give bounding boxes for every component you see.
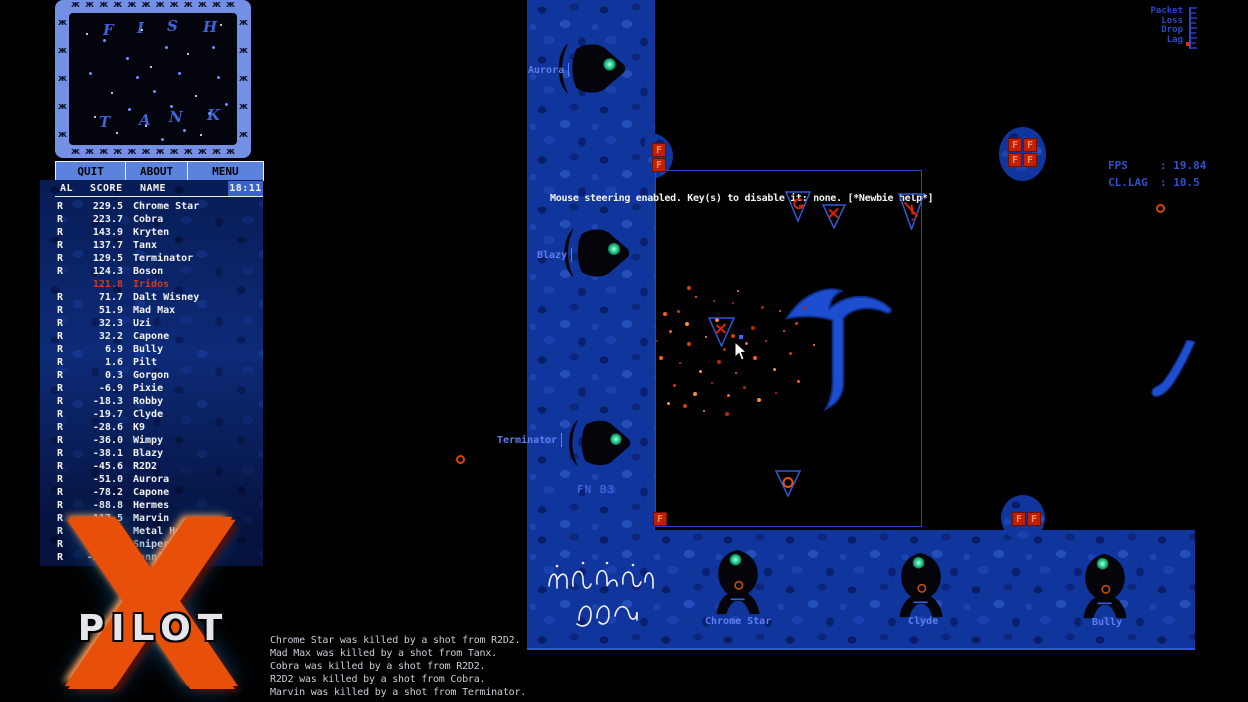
- explosion-debris: [757, 398, 761, 402]
- xpilot-screen: жжжжжжжжжжжж жжжжжжжжжжжж жжжжж жжжжж F …: [0, 0, 1248, 702]
- fuel-cell: F: [1008, 138, 1022, 152]
- player-name: Pixie: [133, 383, 163, 394]
- score-value: -19.7: [71, 409, 123, 420]
- radar-star: [178, 72, 181, 75]
- lag-value: : 10.5: [1160, 176, 1200, 189]
- net-meter-gauge: [1186, 5, 1202, 51]
- explosion-debris: [773, 368, 776, 371]
- score-value: 143.9: [71, 227, 123, 238]
- score-value: -18.3: [71, 396, 123, 407]
- score-value: -38.1: [71, 448, 123, 459]
- net-lag-marker: [1186, 42, 1190, 46]
- fuel-cell: F: [1023, 138, 1037, 152]
- score-flag: R: [57, 461, 71, 472]
- fish-clyde: [896, 552, 946, 618]
- radar-star: [200, 134, 202, 136]
- score-value: -45.6: [71, 461, 123, 472]
- score-flag: R: [57, 266, 71, 277]
- explosion-debris: [673, 384, 676, 387]
- fish-icon: ж: [57, 102, 68, 112]
- explosion-debris: [717, 360, 721, 364]
- score-row: R -38.1 Blazy: [40, 447, 263, 460]
- score-header: AL SCORE NAME 18:11: [40, 181, 263, 196]
- score-value: -6.9: [71, 383, 123, 394]
- player-name: R2D2: [133, 461, 157, 472]
- explosion-debris: [663, 312, 667, 316]
- explosion-debris: [659, 356, 663, 360]
- score-row: R -45.6 R2D2: [40, 460, 263, 473]
- radar-star: [126, 57, 129, 60]
- fish-icon: ж: [184, 147, 193, 158]
- fish-icon: ж: [184, 0, 193, 11]
- fuel-cell: F: [1027, 512, 1041, 526]
- explosion-debris: [743, 386, 746, 389]
- fish-icon: ж: [57, 18, 68, 28]
- score-row: R 1.6 Pilt: [40, 356, 263, 369]
- radar-border-fish-bottom: жжжжжжжжжжжж: [71, 147, 235, 158]
- explosion-debris: [705, 336, 707, 338]
- explosion-debris: [693, 392, 697, 396]
- fish-icon: ж: [57, 74, 68, 84]
- explosion-debris: [685, 322, 689, 326]
- score-row: R -28.6 K9: [40, 421, 263, 434]
- kill-message: Cobra was killed by a shot from R2D2.: [270, 661, 526, 674]
- radar-letter: F: [103, 21, 114, 39]
- score-row: R 137.7 Tanx: [40, 239, 263, 252]
- score-value: 32.2: [71, 331, 123, 342]
- player-name: Dalt Wisney: [133, 292, 199, 303]
- radar-star: [220, 24, 222, 26]
- explosion-debris: [683, 404, 687, 408]
- lag-label: CL.LAG: [1108, 174, 1160, 191]
- radar-border-fish-left: жжжжж: [57, 18, 68, 140]
- quit-button[interactable]: QUIT: [56, 162, 125, 180]
- radar-star: [225, 103, 228, 106]
- player-name: Capone: [133, 331, 169, 342]
- net-meter-label: Lag: [1113, 36, 1183, 46]
- explosion-debris: [732, 302, 734, 304]
- fish-icon: ж: [99, 147, 108, 158]
- score-flag: R: [57, 396, 71, 407]
- logo-title: PILOT: [40, 608, 263, 649]
- player-name: Uzi: [133, 318, 151, 329]
- explosion-debris: [677, 310, 680, 313]
- player-name: Bully: [133, 344, 163, 355]
- radar-star: [86, 33, 88, 35]
- kill-message: Mad Max was killed by a shot from Tanx.: [270, 648, 526, 661]
- player-name: Cobra: [133, 214, 163, 225]
- fish-icon: ж: [238, 102, 249, 112]
- fps-label: FPS: [1108, 157, 1160, 174]
- score-flag: R: [57, 331, 71, 342]
- score-row: 121.8 Iridos: [40, 278, 263, 291]
- score-value: -36.0: [71, 435, 123, 446]
- fish-icon: ж: [71, 0, 80, 11]
- col-header-al: AL: [60, 183, 73, 194]
- kill-message: Marvin was killed by a shot from Termina…: [270, 687, 526, 700]
- player-name: Terminator: [133, 253, 193, 264]
- fish-icon: ж: [141, 147, 150, 158]
- fish-icon: ж: [198, 147, 207, 158]
- score-row: R 124.3 Boson: [40, 265, 263, 278]
- explosion-debris: [783, 330, 785, 332]
- fps-panel: FPS: 19.84 CL.LAG: 10.5: [1108, 157, 1206, 191]
- explosion-debris: [655, 340, 657, 342]
- explosion-debris: [803, 306, 806, 309]
- score-row: R 143.9 Kryten: [40, 226, 263, 239]
- player-name: Tanx: [133, 240, 157, 251]
- label-tagbar: [561, 433, 562, 447]
- score-flag: R: [57, 227, 71, 238]
- clock: 18:11: [228, 181, 263, 196]
- radar-star: [217, 76, 220, 79]
- fish-icon: ж: [156, 0, 165, 11]
- score-row: R 51.9 Mad Max: [40, 304, 263, 317]
- radar-star: [165, 46, 168, 49]
- map-label-chrome-star: Chrome Star: [705, 616, 771, 627]
- player-name: Gorgon: [133, 370, 169, 381]
- radar-border-fish-top: жжжжжжжжжжжж: [71, 0, 235, 11]
- player-name: Robby: [133, 396, 163, 407]
- player-name: Boson: [133, 266, 163, 277]
- radar-star: [116, 132, 118, 134]
- net-meter-labels: PacketLossDropLag: [1113, 7, 1183, 45]
- label-tagbar: [571, 248, 572, 262]
- fuel-cell: F: [1008, 153, 1022, 167]
- explosion-debris: [713, 300, 715, 302]
- radar-star: [128, 108, 131, 111]
- fuel-cell: F: [1012, 512, 1026, 526]
- fish-icon: ж: [226, 0, 235, 11]
- score-flag: R: [57, 201, 71, 212]
- fish-terminator: [563, 418, 631, 468]
- explosion-debris: [745, 342, 748, 345]
- score-flag: R: [57, 214, 71, 225]
- radar-star: [212, 46, 215, 49]
- score-row: R 32.3 Uzi: [40, 317, 263, 330]
- col-header-name: NAME: [140, 183, 166, 194]
- about-button[interactable]: ABOUT: [125, 162, 186, 180]
- header-underline: [55, 196, 263, 197]
- score-flag: R: [57, 240, 71, 251]
- fuel-cell: F: [652, 143, 666, 157]
- menu-button[interactable]: MENU: [187, 162, 263, 180]
- player-name: Chrome Star: [133, 201, 199, 212]
- kill-message: Chrome Star was killed by a shot from R2…: [270, 635, 526, 648]
- score-value: 124.3: [71, 266, 123, 277]
- score-row: R -18.3 Robby: [40, 395, 263, 408]
- radar-letter: I: [137, 19, 144, 37]
- explosion-debris: [779, 310, 781, 312]
- radar-star: [136, 76, 139, 79]
- sector-label: FN B3: [577, 483, 615, 496]
- score-row: R 0.3 Gorgon: [40, 369, 263, 382]
- score-row: R 71.7 Dalt Wisney: [40, 291, 263, 304]
- fish-icon: ж: [113, 0, 122, 11]
- fish-icon: ж: [57, 130, 68, 140]
- player-name: Wimpy: [133, 435, 163, 446]
- fish-icon: ж: [238, 18, 249, 28]
- score-value: -28.6: [71, 422, 123, 433]
- fish-icon: ж: [238, 46, 249, 56]
- explosion-debris: [789, 352, 792, 355]
- tengwar-wall-glyph: [783, 283, 892, 412]
- radar-letter: S: [167, 17, 178, 35]
- radar-star: [103, 39, 106, 42]
- radar-border-fish-right: жжжжж: [238, 18, 249, 140]
- col-header-score: SCORE: [90, 183, 123, 194]
- fish-icon: ж: [170, 0, 179, 11]
- map-label-aurora: Aurora: [528, 63, 569, 77]
- score-value: 71.7: [71, 292, 123, 303]
- explosion-debris: [797, 380, 800, 383]
- explosion-debris: [751, 326, 755, 330]
- score-row: R 229.5 Chrome Star: [40, 200, 263, 213]
- radar-star: [187, 53, 189, 55]
- fish-icon: ж: [212, 147, 221, 158]
- explosion-debris: [695, 296, 697, 298]
- player-name: Blazy: [133, 448, 163, 459]
- fish-icon: ж: [71, 147, 80, 158]
- explosion-debris: [737, 290, 739, 292]
- enemy-ship: [775, 470, 801, 497]
- status-message: Mouse steering enabled. Key(s) to disabl…: [550, 193, 933, 204]
- score-flag: R: [57, 435, 71, 446]
- score-value: 6.9: [71, 344, 123, 355]
- radar-star: [195, 95, 197, 97]
- fish-icon: ж: [198, 0, 207, 11]
- xpilot-logo: X PILOT: [40, 530, 263, 702]
- radar-star: [89, 72, 92, 75]
- kill-feed: Chrome Star was killed by a shot from R2…: [270, 635, 526, 700]
- fish-icon: ж: [113, 147, 122, 158]
- explosion-debris: [711, 382, 713, 384]
- score-row: R 129.5 Terminator: [40, 252, 263, 265]
- radar-star: [153, 90, 156, 93]
- score-value: 1.6: [71, 357, 123, 368]
- fish-icon: ж: [85, 0, 94, 11]
- radar-star: [161, 138, 164, 141]
- explosion-debris: [687, 342, 691, 346]
- fish-bully: [1080, 553, 1130, 619]
- enemy-ship: [785, 191, 811, 222]
- debris-ring: [456, 455, 465, 464]
- label-tagbar: [568, 63, 569, 77]
- tengwar-script: [545, 556, 663, 628]
- fish-icon: ж: [226, 147, 235, 158]
- fuel-cell: F: [653, 512, 667, 526]
- sidebar: жжжжжжжжжжжж жжжжжжжжжжжж жжжжж жжжжж F …: [40, 0, 263, 702]
- map-label-clyde: Clyde: [908, 616, 938, 627]
- score-flag: R: [57, 422, 71, 433]
- score-value: 229.5: [71, 201, 123, 212]
- explosion-debris: [775, 392, 777, 394]
- explosion-debris: [667, 402, 670, 405]
- fish-icon: ж: [170, 147, 179, 158]
- score-value: 0.3: [71, 370, 123, 381]
- player-name: Mad Max: [133, 305, 175, 316]
- score-flag: R: [57, 448, 71, 459]
- explosion-debris: [679, 362, 681, 364]
- explosion-debris: [727, 394, 730, 397]
- score-flag: R: [57, 370, 71, 381]
- debris-ring: [1156, 204, 1165, 213]
- radar-star: [145, 125, 147, 127]
- explosion-debris: [753, 356, 757, 360]
- explosion-debris: [725, 412, 729, 416]
- enemy-ship: [822, 204, 846, 229]
- explosion-debris: [765, 340, 767, 342]
- game-viewport[interactable]: F F F F F F F F F Aurora Blazy Terminato…: [527, 0, 1248, 702]
- fish-icon: ж: [127, 0, 136, 11]
- fish-icon: ж: [212, 0, 221, 11]
- score-value: 51.9: [71, 305, 123, 316]
- menu-bar: QUIT ABOUT MENU: [55, 161, 264, 181]
- kill-message: R2D2 was killed by a shot from Cobra.: [270, 674, 526, 687]
- fish-icon: ж: [156, 147, 165, 158]
- radar-star: [183, 129, 186, 132]
- score-value: 137.7: [71, 240, 123, 251]
- fuel-cell: F: [652, 158, 666, 172]
- explosion-debris: [761, 306, 764, 309]
- score-flag: R: [57, 344, 71, 355]
- radar-star: [111, 92, 113, 94]
- explosion-debris: [735, 372, 737, 374]
- tengwar-edge-glyph: [1150, 340, 1195, 398]
- radar-minimap: жжжжжжжжжжжж жжжжжжжжжжжж жжжжж жжжжж F …: [55, 0, 251, 158]
- score-flag: R: [57, 292, 71, 303]
- score-row: R 6.9 Bully: [40, 343, 263, 356]
- score-value: 223.7: [71, 214, 123, 225]
- score-flag: R: [57, 409, 71, 420]
- explosion-debris: [687, 286, 691, 290]
- score-row: R 223.7 Cobra: [40, 213, 263, 226]
- fuel-cell: F: [1023, 153, 1037, 167]
- map-label-terminator: Terminator: [497, 433, 562, 447]
- own-ship-dot: [739, 335, 743, 339]
- explosion-debris: [703, 410, 705, 412]
- player-name: Clyde: [133, 409, 163, 420]
- radar-letter: N: [169, 108, 183, 126]
- score-flag: R: [57, 383, 71, 394]
- player-name: Pilt: [133, 357, 157, 368]
- enemy-ship: [708, 317, 735, 347]
- enemy-ship: [898, 193, 925, 230]
- map-label-bully: Bully: [1092, 617, 1122, 628]
- player-name: Iridos: [133, 279, 169, 290]
- explosion-debris: [699, 370, 702, 373]
- fish-icon: ж: [85, 147, 94, 158]
- explosion-debris: [813, 344, 815, 346]
- map-label-blazy: Blazy: [537, 248, 572, 262]
- explosion-debris: [669, 330, 672, 333]
- fish-icon: ж: [57, 46, 68, 56]
- score-row: R -19.7 Clyde: [40, 408, 263, 421]
- explosion-debris: [723, 348, 726, 351]
- score-flag: R: [57, 305, 71, 316]
- explosion-debris: [795, 322, 798, 325]
- fish-chrome-star: [713, 549, 763, 615]
- radar-star: [150, 66, 152, 68]
- score-flag: R: [57, 253, 71, 264]
- fish-icon: ж: [141, 0, 150, 11]
- player-name: K9: [133, 422, 145, 433]
- score-value: 121.8: [71, 279, 123, 290]
- fish-icon: ж: [99, 0, 108, 11]
- radar-field: F I S H T A N K: [69, 13, 237, 145]
- score-row: R -6.9 Pixie: [40, 382, 263, 395]
- fish-icon: ж: [127, 147, 136, 158]
- score-flag: R: [57, 318, 71, 329]
- score-value: 129.5: [71, 253, 123, 264]
- score-flag: R: [57, 357, 71, 368]
- radar-letter: K: [207, 106, 220, 124]
- score-row: R -36.0 Wimpy: [40, 434, 263, 447]
- radar-star: [94, 116, 96, 118]
- radar-letter: T: [99, 113, 110, 131]
- score-value: 32.3: [71, 318, 123, 329]
- fish-icon: ж: [238, 74, 249, 84]
- player-name: Kryten: [133, 227, 169, 238]
- fps-value: : 19.84: [1160, 159, 1206, 172]
- score-row: R 32.2 Capone: [40, 330, 263, 343]
- radar-letter: H: [203, 18, 217, 36]
- fish-icon: ж: [238, 130, 249, 140]
